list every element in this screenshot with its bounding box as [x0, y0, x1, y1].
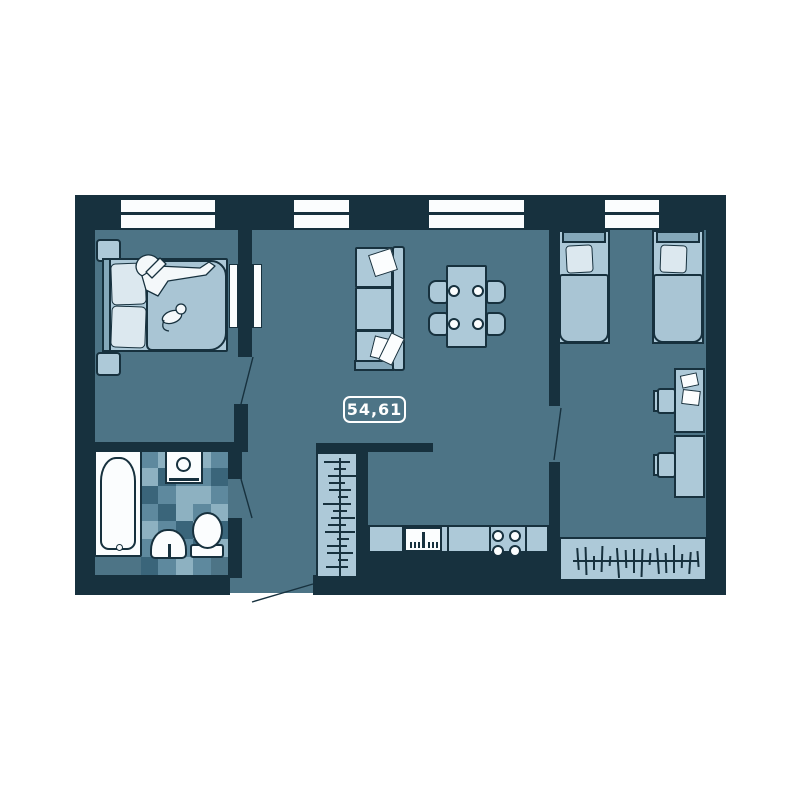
floor-plan: 54,61 — [0, 0, 800, 800]
hanger-stroke — [585, 547, 588, 575]
hanger-stroke — [327, 545, 347, 547]
bathroom-tile — [141, 557, 158, 575]
bathroom-tile — [141, 486, 158, 504]
plate — [448, 285, 460, 297]
wardrobe-bedroom — [559, 537, 707, 581]
desk — [674, 435, 705, 498]
counter-divider — [525, 527, 527, 551]
window-pane-line — [294, 212, 349, 215]
hanger-stroke — [593, 556, 595, 570]
hanger-stroke — [338, 559, 348, 561]
kitchen-counter — [368, 525, 549, 553]
hanger-stroke — [338, 496, 348, 498]
window-4 — [605, 200, 659, 228]
stove-burner — [492, 545, 504, 557]
wardrobe-rail — [573, 560, 698, 562]
bed-pillow — [110, 305, 146, 348]
hanger-stroke — [601, 546, 604, 572]
sink-pedestal — [168, 544, 171, 559]
desk-chair-back — [653, 454, 659, 476]
hanger-stroke — [333, 510, 347, 512]
counter-divider — [447, 527, 449, 551]
bathroom-tile — [141, 468, 158, 486]
washer-door — [176, 457, 191, 472]
hanger-stroke — [696, 551, 699, 567]
wall-bedroom-upper — [238, 230, 252, 267]
hanger-stroke — [328, 475, 358, 477]
bathtub-basin — [100, 457, 136, 550]
hanger-stroke — [649, 553, 652, 565]
bathroom-tile — [211, 486, 228, 504]
desk-chair — [657, 452, 676, 478]
hanger-stroke — [323, 503, 351, 505]
sink-grate — [428, 542, 430, 548]
interior-window-frame — [238, 264, 253, 328]
plate — [448, 318, 460, 330]
nightstand — [96, 352, 121, 376]
toilet-bowl — [192, 512, 223, 549]
hanger-stroke — [633, 549, 635, 573]
stove-burner — [492, 530, 504, 542]
bathtub-drain — [116, 544, 123, 551]
window-pane-line — [429, 212, 524, 215]
bathroom-tile — [176, 557, 193, 575]
bed-headboard — [656, 231, 700, 243]
bathtub — [94, 450, 142, 557]
wall-kitchen-vertical — [358, 443, 368, 578]
stove-burner — [509, 530, 521, 542]
bathroom-tile — [211, 557, 228, 575]
desk-chair — [657, 388, 676, 414]
wardrobe-hall — [316, 452, 358, 578]
washing-machine — [165, 450, 203, 484]
counter-divider — [489, 527, 491, 551]
wall-bathroom-lower — [228, 518, 242, 578]
hanger-stroke — [329, 482, 345, 484]
plate — [472, 318, 484, 330]
plate — [472, 285, 484, 297]
wall-hall-cap — [316, 443, 433, 452]
wall-left — [75, 195, 95, 595]
sink-grate — [414, 542, 416, 548]
kitchen-sink — [404, 527, 442, 552]
hanger-stroke — [688, 552, 692, 574]
sofa-cushion — [355, 287, 393, 331]
bathroom-sink — [150, 529, 187, 559]
hanger-stroke — [665, 553, 668, 573]
bathroom-tile — [158, 486, 175, 504]
dining-chair — [428, 312, 448, 336]
bed-blanket — [146, 260, 227, 351]
hanger-stroke — [576, 548, 580, 570]
sink-grate — [418, 542, 420, 548]
hanger-stroke — [327, 552, 353, 554]
floor-entrance — [230, 575, 313, 593]
hanger-stroke — [328, 524, 346, 526]
desk-chair-back — [653, 390, 659, 412]
wall-right — [706, 195, 726, 595]
sink-grate — [436, 542, 438, 548]
hanger-stroke — [609, 556, 612, 566]
bed-pillow — [110, 262, 146, 305]
sink-grate — [410, 542, 412, 548]
window-pane-line — [121, 212, 215, 215]
bathroom-tile — [193, 486, 210, 504]
window-1 — [121, 200, 215, 228]
bathroom-tile — [176, 486, 193, 504]
bathroom-tile — [211, 468, 228, 486]
bathroom-tile — [193, 557, 210, 575]
wall-bathroom-upper — [228, 452, 242, 479]
dining-table — [446, 265, 487, 348]
hanger-stroke — [334, 468, 346, 470]
dining-chair — [428, 280, 448, 304]
window-pane-line — [605, 212, 659, 215]
hanger-stroke — [337, 538, 349, 540]
area-label: 54,61 — [343, 396, 406, 423]
hanger-stroke — [325, 531, 355, 533]
bed-pillow — [565, 244, 593, 273]
interior-window-bar — [253, 264, 262, 328]
bathroom-tile — [211, 450, 228, 468]
washer-base — [169, 478, 199, 481]
window-2 — [294, 200, 349, 228]
dining-chair — [486, 312, 506, 336]
hanger-stroke — [326, 566, 348, 568]
interior-window-bar — [229, 264, 238, 328]
sink-grate — [432, 542, 434, 548]
hanger-stroke — [324, 461, 350, 463]
bathroom-tile — [158, 504, 175, 522]
bathroom-tile — [158, 557, 175, 575]
bathroom-tile — [141, 504, 158, 522]
desk-papers — [681, 389, 701, 406]
hanger-stroke — [681, 554, 683, 568]
hanger-stroke — [331, 517, 355, 519]
bed-headboard — [562, 231, 606, 243]
bed-blanket — [653, 274, 703, 343]
hanger-stroke — [641, 549, 644, 577]
hanger-stroke — [616, 548, 620, 578]
bathroom-tile — [141, 450, 158, 468]
faucet — [422, 532, 425, 548]
wall-kitchen-base — [358, 553, 560, 578]
hanger-stroke — [673, 545, 675, 573]
bed-blanket — [559, 274, 609, 343]
window-3 — [429, 200, 524, 228]
hanger-stroke — [625, 550, 628, 568]
bathroom-tile — [176, 504, 193, 522]
hanger-stroke — [329, 489, 351, 491]
bed-pillow — [660, 245, 688, 274]
dining-chair — [486, 280, 506, 304]
wall-bottom-left — [75, 575, 230, 595]
wall-bedroom-mid — [238, 327, 252, 357]
stove-burner — [509, 545, 521, 557]
